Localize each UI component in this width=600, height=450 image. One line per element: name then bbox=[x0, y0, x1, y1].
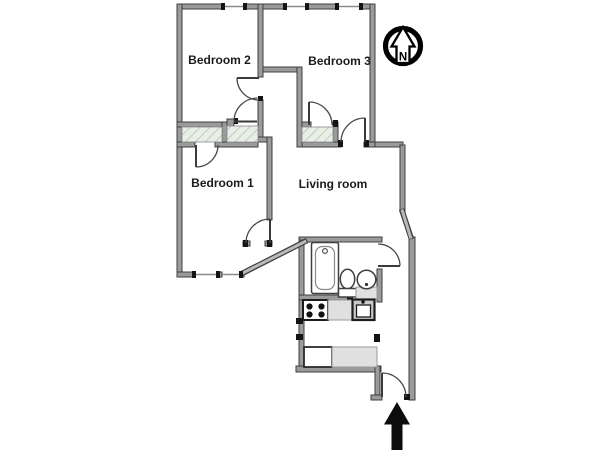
closet-2 bbox=[227, 126, 258, 142]
living-room-label: Living room bbox=[299, 177, 368, 191]
kitchen-counter-2-icon bbox=[332, 347, 377, 367]
bathroom-door bbox=[378, 244, 400, 266]
entrance-arrow-icon bbox=[384, 402, 410, 450]
closet-3 bbox=[302, 127, 333, 142]
kitchen-fixtures bbox=[303, 300, 377, 368]
bedroom1-label: Bedroom 1 bbox=[191, 176, 254, 190]
compass-letter: N bbox=[399, 52, 407, 64]
floor-plan: N Bedroom 2 Bedroom 3 Bedroom 1 Living r… bbox=[0, 0, 600, 450]
bedroom2-door bbox=[237, 78, 259, 100]
closet3-door bbox=[309, 102, 332, 125]
north-compass-icon: N bbox=[386, 27, 421, 64]
bathroom-fixtures bbox=[312, 243, 378, 300]
kitchen-counter-icon bbox=[328, 300, 352, 320]
closet1-door bbox=[196, 145, 218, 167]
stove-icon bbox=[303, 300, 328, 320]
kitchen-sink-icon bbox=[353, 300, 375, 321]
toilet-icon bbox=[339, 269, 357, 297]
entrance-door bbox=[382, 373, 406, 397]
bathroom-sink-icon bbox=[356, 270, 377, 299]
floor-plan-svg: N Bedroom 2 Bedroom 3 Bedroom 1 Living r… bbox=[0, 0, 600, 450]
bedroom1-door bbox=[246, 219, 270, 243]
bedroom3-label: Bedroom 3 bbox=[308, 54, 371, 68]
closet2-door bbox=[234, 98, 258, 122]
closets bbox=[182, 126, 333, 142]
closet-1 bbox=[182, 127, 222, 142]
bedroom3-door bbox=[341, 118, 365, 142]
refrigerator-icon bbox=[304, 347, 332, 367]
bathtub-icon bbox=[312, 243, 339, 294]
bedroom2-label: Bedroom 2 bbox=[188, 53, 251, 67]
